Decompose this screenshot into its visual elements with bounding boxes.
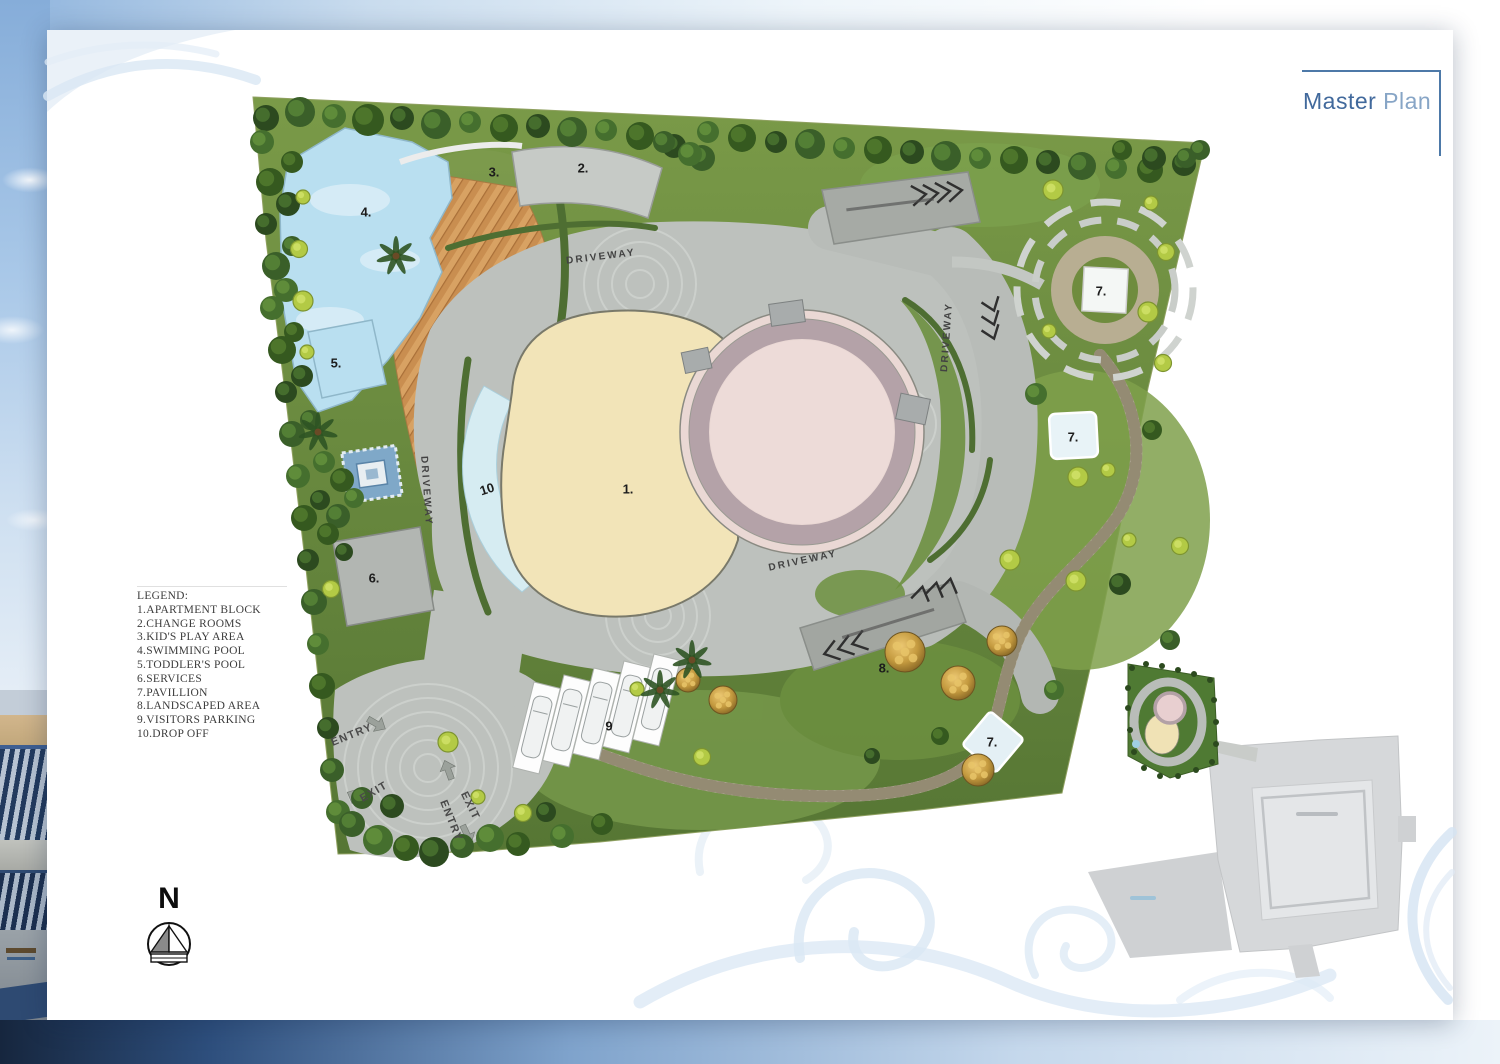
title-frame: Master Plan xyxy=(1302,70,1441,156)
marker-change-rooms: 2. xyxy=(578,161,589,176)
page-title: Master Plan xyxy=(1303,88,1431,115)
legend-item: 2.CHANGE ROOMS xyxy=(137,618,287,632)
marker-toddlers-pool: 5. xyxy=(331,356,342,371)
legend-item: 7.PAVILLION xyxy=(137,687,287,701)
site-plan-artwork xyxy=(0,0,1500,1064)
marker-apartment-block: 1. xyxy=(623,482,634,497)
services-building xyxy=(333,527,434,626)
legend-block: LEGEND: 1.APARTMENT BLOCK2.CHANGE ROOMS3… xyxy=(137,586,287,742)
toddlers-pool xyxy=(308,320,386,398)
compass-icon xyxy=(148,923,190,965)
legend-item: 8.LANDSCAPED AREA xyxy=(137,700,287,714)
compass-north-label: N xyxy=(158,884,180,914)
title-primary: Master xyxy=(1303,88,1376,114)
legend-items: 1.APARTMENT BLOCK2.CHANGE ROOMS3.KID'S P… xyxy=(137,604,287,742)
brochure-canvas: Master Plan LEGEND: 1.APARTMENT BLOCK2.C… xyxy=(0,0,1500,1064)
marker-visitors-parking: 9 xyxy=(605,719,612,734)
marker-pavilion-bottom: 7. xyxy=(987,735,998,750)
inset-location-plan xyxy=(1088,661,1416,978)
legend-item: 9.VISITORS PARKING xyxy=(137,714,287,728)
title-secondary: Plan xyxy=(1376,88,1431,114)
legend-item: 4.SWIMMING POOL xyxy=(137,645,287,659)
legend-heading: LEGEND: xyxy=(137,590,287,604)
marker-kids-play-area: 3. xyxy=(489,165,500,180)
legend-item: 10.DROP OFF xyxy=(137,728,287,742)
legend-item: 1.APARTMENT BLOCK xyxy=(137,604,287,618)
main-site-plan xyxy=(250,97,1210,867)
tower-circle-building xyxy=(680,310,924,554)
marker-pavilion-mid: 7. xyxy=(1068,430,1079,445)
marker-swimming-pool: 4. xyxy=(361,205,372,220)
marker-landscaped-area: 8. xyxy=(879,661,890,676)
legend-item: 5.TODDLER'S POOL xyxy=(137,659,287,673)
marker-pavilion-top: 7. xyxy=(1096,284,1107,299)
legend-item: 6.SERVICES xyxy=(137,673,287,687)
marker-services: 6. xyxy=(369,571,380,586)
legend-item: 3.KID'S PLAY AREA xyxy=(137,631,287,645)
